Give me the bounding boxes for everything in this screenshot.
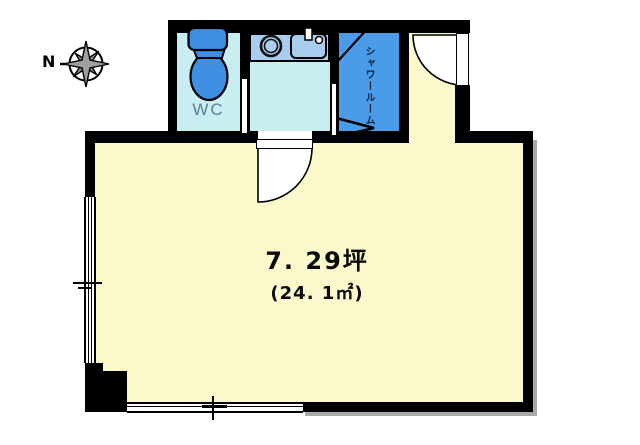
wc-room-label: WC <box>177 100 240 120</box>
wall-horizontal-right <box>455 131 533 143</box>
window-bottom-tick-bar <box>202 405 227 408</box>
wall-bottom-right <box>303 402 533 412</box>
room-door-swing-icon <box>256 146 316 206</box>
entrance-door-leaf <box>456 33 469 86</box>
toilet-tank <box>189 28 228 50</box>
north-label: N <box>42 52 55 71</box>
shadow-right <box>533 140 537 416</box>
faucet-knob-icon <box>316 37 323 44</box>
wall-strip-left <box>168 20 177 143</box>
wall-shower-right <box>399 20 409 143</box>
faucet-icon <box>305 28 312 40</box>
window-left <box>84 197 96 363</box>
main-room-area-label: 7. 29坪 (24. 1㎡) <box>103 241 531 305</box>
wc-door <box>241 78 248 134</box>
shower-door-opening <box>331 83 337 136</box>
window-left-tick-small <box>78 287 92 289</box>
wall-left-upper <box>85 131 95 197</box>
toilet-icon <box>187 26 231 104</box>
wall-horizontal-mid <box>312 131 409 143</box>
area-sqm-text: (24. 1㎡) <box>270 279 363 305</box>
shadow-bottom <box>305 412 537 416</box>
shower-room-label: シャワールーム <box>361 46 376 127</box>
pillar <box>85 371 127 412</box>
room-door-leaf <box>256 139 313 149</box>
kitchen-fixtures-icon <box>249 27 330 63</box>
compass-rose-icon <box>60 38 112 90</box>
compass-star-main <box>63 41 109 87</box>
burner-inner-ring <box>265 40 278 53</box>
wall-horizontal-left <box>85 131 258 143</box>
window-bottom-tick <box>212 396 214 420</box>
floorplan-canvas: N WC シャワールーム 7. 29坪 (24. 1㎡) <box>0 0 640 445</box>
area-tsubo-text: 7. 29坪 <box>265 241 369 276</box>
toilet-bowl <box>191 53 228 100</box>
window-left-tick <box>73 282 102 284</box>
